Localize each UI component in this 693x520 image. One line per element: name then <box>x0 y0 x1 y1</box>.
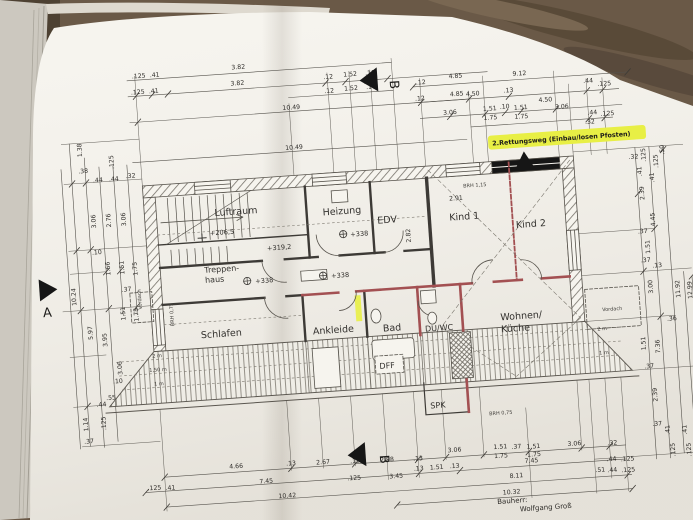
dim-label: 1.75 <box>514 113 528 121</box>
roof-height-label: 1 m <box>599 350 609 357</box>
dim-label: .125 <box>686 442 693 456</box>
room-label-edv: EDV <box>377 214 398 226</box>
dim-label: .44 <box>587 109 597 117</box>
dim-label: .125 <box>600 110 614 118</box>
dim-label: .37 <box>644 363 654 371</box>
dim-label: .41 <box>149 88 159 96</box>
dim-label: 3.95 <box>102 333 110 347</box>
dim-label: 1.75 <box>494 452 508 460</box>
dim-label: .12 <box>415 95 425 103</box>
dim-label: 5.97 <box>87 326 95 340</box>
dim-label: .55 <box>106 394 116 402</box>
dim-label: .12 <box>323 73 333 81</box>
dim-label: .13 <box>450 463 460 471</box>
room-label-kind2: Kind 2 <box>516 218 547 231</box>
dim-label: .44 <box>606 456 616 464</box>
level-label: +338 <box>255 276 274 285</box>
dim-label: 2.82 <box>405 228 413 242</box>
dim-label: .32 <box>585 118 595 126</box>
dim-label: .41 <box>165 484 175 492</box>
dim-label: .125 <box>652 154 660 168</box>
roof-height-label: 1 m <box>154 381 164 388</box>
dim-label: .37 <box>641 257 651 265</box>
dim-label: 10.42 <box>278 492 296 500</box>
section-b-bottom-label: B <box>376 454 392 464</box>
roof-height-label: 1,50 m <box>149 367 167 374</box>
dim-label: .41 <box>664 425 672 435</box>
dim-label: .10 <box>500 103 510 111</box>
dim-label: .125 <box>108 155 116 169</box>
dim-label: 3.82 <box>230 80 244 88</box>
dim-label: 10.32 <box>503 488 521 496</box>
chimney-shaft <box>449 332 473 379</box>
dim-label: .13 <box>286 460 296 468</box>
level-label: +338 <box>350 229 369 238</box>
room-label-kind1: Kind 1 <box>449 211 480 224</box>
dim-label: .51 <box>595 466 605 474</box>
dim-label: 1.75 <box>483 114 497 122</box>
dim-label: 2.39 <box>639 186 647 200</box>
dim-label: .125 <box>620 455 634 463</box>
roof-height-label: 2 m <box>152 353 162 360</box>
photo-scene: .125 .41 3.82 .125 .41 3.82 .12 1.52 .10… <box>0 0 693 520</box>
dim-label: 4.85 <box>450 90 464 98</box>
dim-label: .41 <box>649 172 657 182</box>
dim-label: .125 <box>640 148 648 162</box>
dim-label: 3.06 <box>555 103 569 111</box>
dim-label: 7.36 <box>654 339 662 353</box>
dim-label: .125 <box>597 80 611 88</box>
dim-label: 4.50 <box>466 90 480 98</box>
floorplan-photo: .125 .41 3.82 .125 .41 3.82 .12 1.52 .10… <box>0 0 693 520</box>
dim-label: 3.45 <box>389 473 403 481</box>
dim-label: 7.45 <box>524 457 538 465</box>
dim-label: .12 <box>324 87 334 95</box>
dim-label: 10.49 <box>282 104 300 112</box>
dim-label: 3.82 <box>231 64 245 72</box>
dim-label: .125 <box>100 416 108 430</box>
dim-label: 1.51 <box>483 105 497 113</box>
dim-label: 1.52 <box>343 71 357 79</box>
dim-label: .44 <box>96 401 106 409</box>
dim-label: 1.52 <box>344 85 358 93</box>
dim-label: 4.50 <box>538 96 552 104</box>
roof-height-label: 2 m <box>597 326 607 333</box>
dim-label: 3.00 <box>647 280 655 294</box>
dim-label: 1.14 <box>82 417 90 431</box>
dim-label: .44 <box>607 467 617 475</box>
dim-label: .13 <box>652 262 662 270</box>
room-label-bad: Bad <box>383 322 402 334</box>
dim-label: 1.51 <box>119 260 127 274</box>
dim-label: 1.51 <box>493 443 507 451</box>
dim-label: .125 <box>670 442 678 456</box>
dim-label: 1.75 <box>132 262 140 276</box>
dim-label: 1.51 <box>526 443 540 451</box>
dim-label: .125 <box>621 466 635 474</box>
dim-label: .10 <box>92 249 102 257</box>
dim-label: .32 <box>607 440 617 448</box>
dim-label: .10 <box>113 378 123 386</box>
dim-label: 3.06 <box>90 214 98 228</box>
dim-label: 1.51 <box>644 240 652 254</box>
dim-label: .125 <box>147 484 161 492</box>
dim-label: 7.45 <box>259 478 273 486</box>
dim-label: 2.67 <box>316 459 330 467</box>
dim-label: 3.06 <box>447 446 461 454</box>
dim-label: 1.51 <box>120 306 128 320</box>
dim-label: 1.51 <box>430 464 444 472</box>
dim-label: .41 <box>681 425 689 435</box>
dim-label: 10.49 <box>285 144 303 152</box>
dim-label: 10.24 <box>70 288 78 306</box>
dim-label: .44 <box>93 177 103 185</box>
dim-label: .37 <box>652 420 662 428</box>
dim-label: .37 <box>84 438 94 446</box>
dim-label: .37 <box>511 443 521 451</box>
dim-label: .37 <box>121 286 131 294</box>
dim-label: 8.11 <box>509 472 523 480</box>
dim-label: .44 <box>583 77 593 85</box>
dim-label: 4.45 <box>649 212 657 226</box>
level-label: +206,5 <box>210 228 235 238</box>
dim-label: .12 <box>416 79 426 87</box>
dim-label: 2.91 <box>449 195 463 203</box>
room-label-spk: SPK <box>430 400 446 410</box>
dim-label: 2.39 <box>652 388 660 402</box>
dim-label: 1.38 <box>76 143 84 157</box>
dim-label: 1.66 <box>105 261 113 275</box>
dim-label: .13 <box>503 87 513 95</box>
dim-label: 3.06 <box>443 109 457 117</box>
dim-label: .125 <box>132 73 146 81</box>
level-label: +319,2 <box>267 243 292 253</box>
dim-label: .41 <box>636 166 644 176</box>
dim-label: .37 <box>638 228 648 236</box>
dim-label: .36 <box>667 315 677 323</box>
dim-label: .13 <box>414 465 424 473</box>
dim-label: 3.06 <box>120 212 128 226</box>
dim-label: .125 <box>131 89 145 97</box>
room-label-treppenhaus: haus <box>205 275 225 285</box>
section-b-top-label: B <box>386 80 402 90</box>
dim-label: .41 <box>150 72 160 80</box>
dim-label: .50 <box>659 144 667 154</box>
dim-label: 2.76 <box>105 213 113 227</box>
dim-label: 12.99 <box>686 281 693 299</box>
dim-label: 3.06 <box>567 440 581 448</box>
level-label: +338 <box>331 271 350 280</box>
dim-label: .32 <box>628 153 638 161</box>
room-label-dff: DFF <box>379 361 395 371</box>
dim-label: .44 <box>109 176 119 184</box>
dim-label: .38 <box>78 168 88 176</box>
dim-label: .125 <box>347 474 361 482</box>
dim-label: 4.66 <box>229 463 243 471</box>
dim-label: 11.92 <box>674 280 682 298</box>
dim-label: 3.06 <box>117 361 125 375</box>
dim-label: .13 <box>413 455 423 463</box>
dim-label: .32 <box>125 172 135 180</box>
dim-label: 9.12 <box>512 70 526 78</box>
dim-label: 1.51 <box>514 104 528 112</box>
section-a-label: A <box>42 306 52 322</box>
room-label-wohnen: Küche <box>501 322 531 335</box>
dim-label: 4.85 <box>448 72 462 80</box>
dim-label: 1.51 <box>640 336 648 350</box>
